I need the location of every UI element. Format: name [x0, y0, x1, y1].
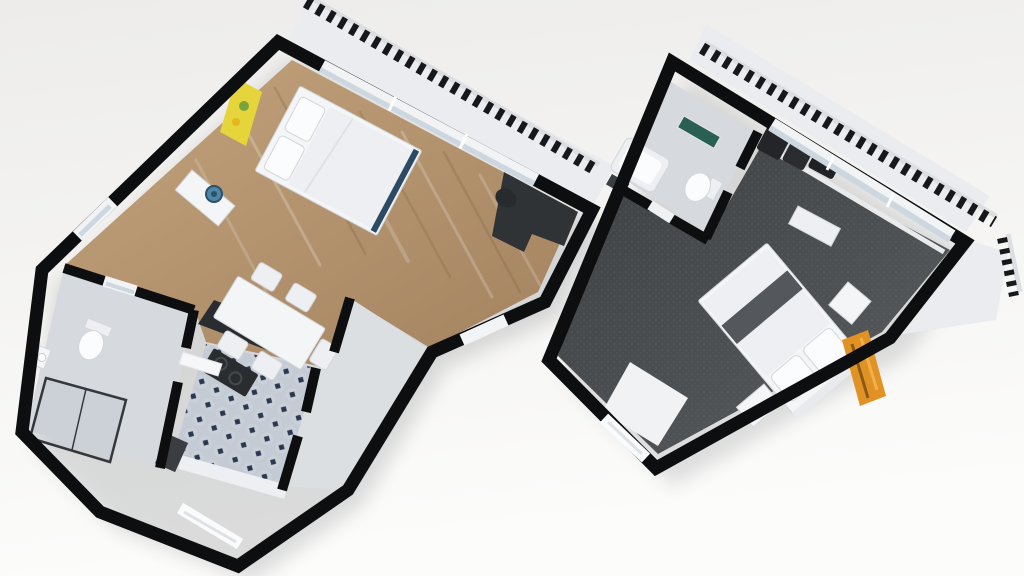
vase-mouth: [211, 191, 217, 197]
art-flower: [232, 118, 240, 126]
art-leaf: [239, 101, 249, 111]
floorplan-render: [0, 0, 1024, 576]
floorplan-canvas: [0, 0, 1024, 576]
